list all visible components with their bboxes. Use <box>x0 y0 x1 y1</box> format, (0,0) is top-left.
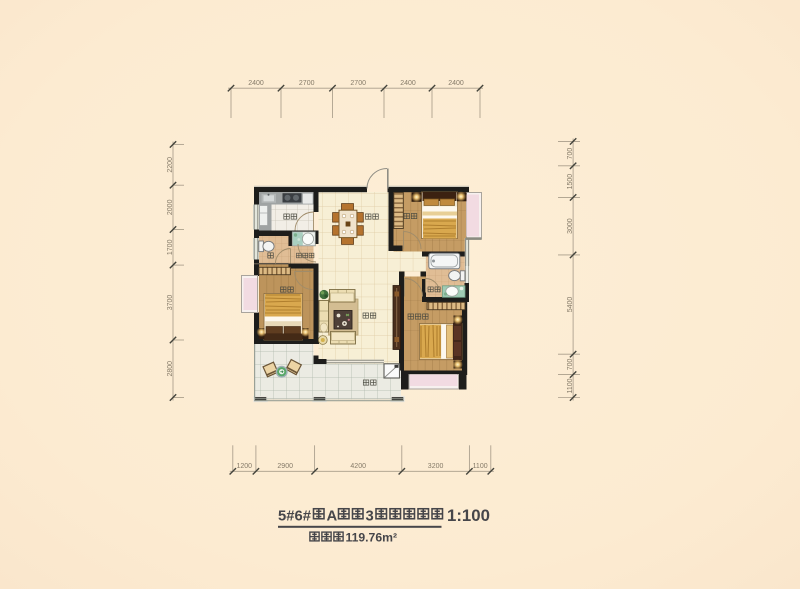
svg-text:3: 3 <box>366 509 374 525</box>
svg-text:1100: 1100 <box>473 463 488 470</box>
svg-text:2400: 2400 <box>248 80 264 87</box>
svg-text:2400: 2400 <box>448 80 464 87</box>
svg-text:700: 700 <box>567 148 574 160</box>
svg-text:3700: 3700 <box>167 295 174 311</box>
svg-text:2700: 2700 <box>350 80 366 87</box>
svg-text:3200: 3200 <box>428 463 444 470</box>
svg-text:A: A <box>327 509 338 525</box>
svg-text:700: 700 <box>567 358 574 370</box>
svg-text:1500: 1500 <box>567 174 574 190</box>
svg-text:1200: 1200 <box>237 463 253 470</box>
svg-text:5#6#: 5#6# <box>278 509 311 525</box>
svg-text:1100: 1100 <box>567 378 574 393</box>
svg-text:2700: 2700 <box>299 80 315 87</box>
svg-text:1700: 1700 <box>167 239 174 255</box>
svg-text:2800: 2800 <box>167 361 174 377</box>
svg-text:1:100: 1:100 <box>447 506 490 525</box>
svg-text:2900: 2900 <box>277 463 293 470</box>
svg-text:3000: 3000 <box>567 218 574 234</box>
svg-text:5400: 5400 <box>567 297 574 313</box>
svg-text:119.76m²: 119.76m² <box>346 530 398 544</box>
svg-text:2200: 2200 <box>167 157 174 173</box>
svg-text:2000: 2000 <box>167 199 174 215</box>
svg-text:2400: 2400 <box>400 80 416 87</box>
svg-text:4200: 4200 <box>350 463 366 470</box>
